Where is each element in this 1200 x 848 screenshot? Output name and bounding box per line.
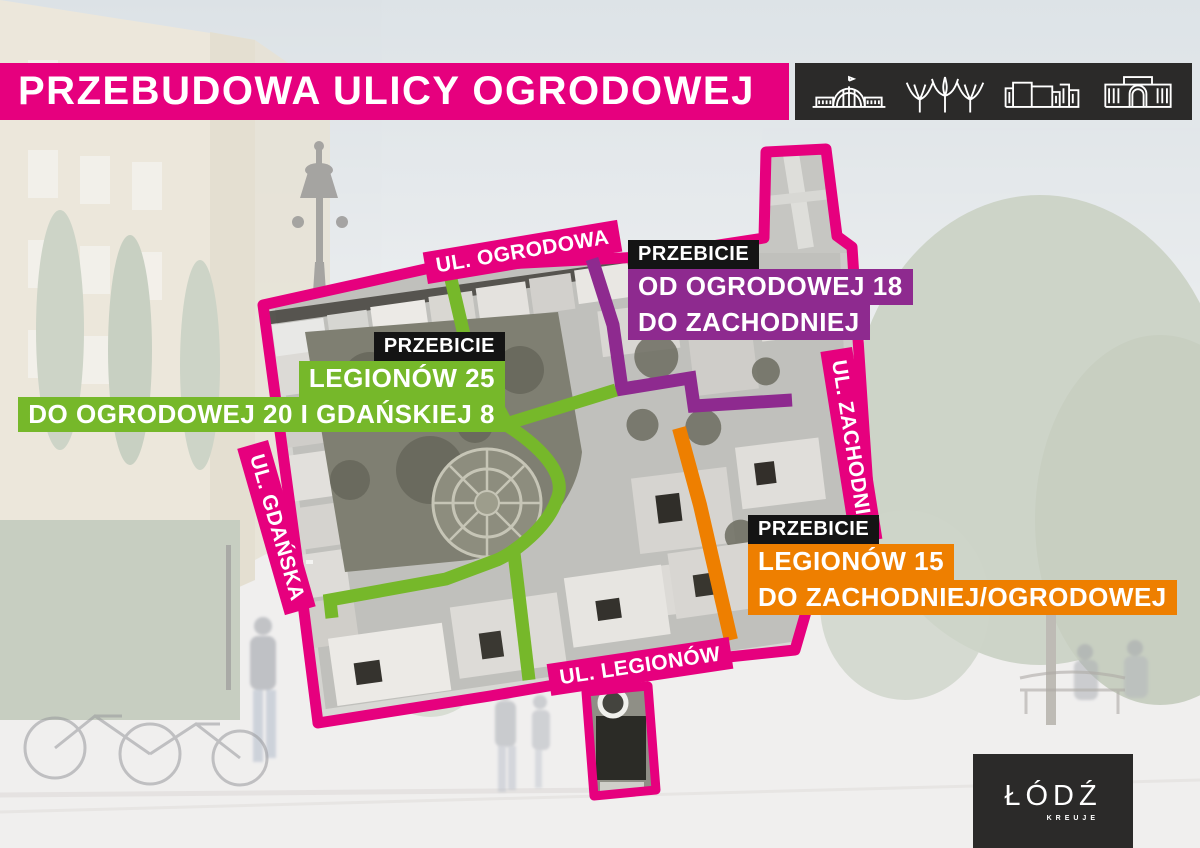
lodz-logo-tagline: KREUJE bbox=[1047, 815, 1099, 822]
callout-ogrodowa-18: PRZEBICIE OD OGRODOWEJ 18 DO ZACHODNIEJ bbox=[628, 240, 913, 340]
callout-line: LEGIONÓW 25 bbox=[299, 361, 505, 397]
callout-line: DO ZACHODNIEJ/OGRODOWEJ bbox=[748, 580, 1177, 616]
callout-legionow-15: PRZEBICIE LEGIONÓW 15 DO ZACHODNIEJ/OGRO… bbox=[748, 515, 1177, 615]
market-hall-icon bbox=[807, 69, 891, 115]
callout-tag: PRZEBICIE bbox=[748, 515, 879, 544]
callout-line: DO OGRODOWEJ 20 I GDAŃSKIEJ 8 bbox=[18, 397, 505, 433]
callout-line: LEGIONÓW 15 bbox=[748, 544, 954, 580]
landmark-icon-bar bbox=[795, 63, 1192, 120]
lodz-logo: ŁÓDŹ KREUJE bbox=[973, 754, 1133, 848]
callout-tag: PRZEBICIE bbox=[628, 240, 759, 269]
modern-complex-icon bbox=[1000, 69, 1084, 115]
page-title: PRZEBUDOWA ULICY OGRODOWEJ bbox=[0, 63, 789, 120]
callout-line: DO ZACHODNIEJ bbox=[628, 305, 870, 341]
arch-portal-building-icon bbox=[1096, 69, 1180, 115]
callout-line: OD OGRODOWEJ 18 bbox=[628, 269, 913, 305]
poster: UL. OGRODOWA UL. GDAŃSKA UL. ZACHODNIA U… bbox=[0, 0, 1200, 848]
canopy-trees-icon bbox=[903, 69, 987, 115]
callout-legionow-25: PRZEBICIE LEGIONÓW 25 DO OGRODOWEJ 20 I … bbox=[18, 332, 505, 432]
lodz-logo-wordmark: ŁÓDŹ bbox=[1004, 780, 1101, 813]
callout-tag: PRZEBICIE bbox=[374, 332, 505, 361]
